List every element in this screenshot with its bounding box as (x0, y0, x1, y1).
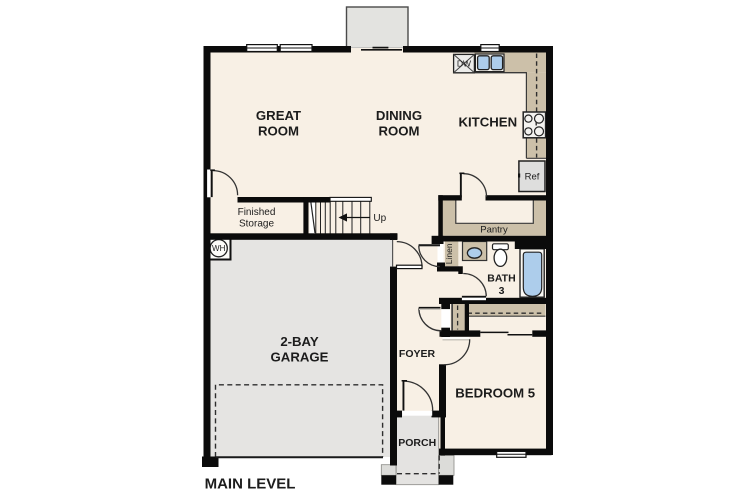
svg-text:2-BAY: 2-BAY (280, 334, 319, 349)
svg-text:3: 3 (499, 285, 505, 297)
svg-text:Pantry: Pantry (480, 225, 508, 236)
svg-text:PORCH: PORCH (398, 437, 436, 449)
svg-text:FOYER: FOYER (399, 348, 436, 360)
svg-text:Up: Up (373, 213, 386, 224)
svg-text:Ref: Ref (525, 172, 540, 183)
svg-text:BEDROOM 5: BEDROOM 5 (455, 386, 535, 401)
svg-text:DW: DW (457, 59, 471, 69)
svg-text:BATH: BATH (487, 272, 515, 284)
svg-text:ROOM: ROOM (258, 123, 299, 138)
svg-text:Finished: Finished (238, 207, 276, 218)
svg-text:KITCHEN: KITCHEN (458, 114, 517, 129)
svg-text:Linen: Linen (444, 243, 454, 264)
svg-text:GREAT: GREAT (256, 108, 301, 123)
svg-text:MAIN LEVEL: MAIN LEVEL (205, 476, 296, 493)
svg-text:DINING: DINING (376, 108, 422, 123)
svg-text:Storage: Storage (239, 218, 274, 229)
svg-text:GARAGE: GARAGE (271, 349, 329, 364)
svg-text:WH: WH (212, 244, 226, 253)
svg-text:ROOM: ROOM (378, 123, 419, 138)
